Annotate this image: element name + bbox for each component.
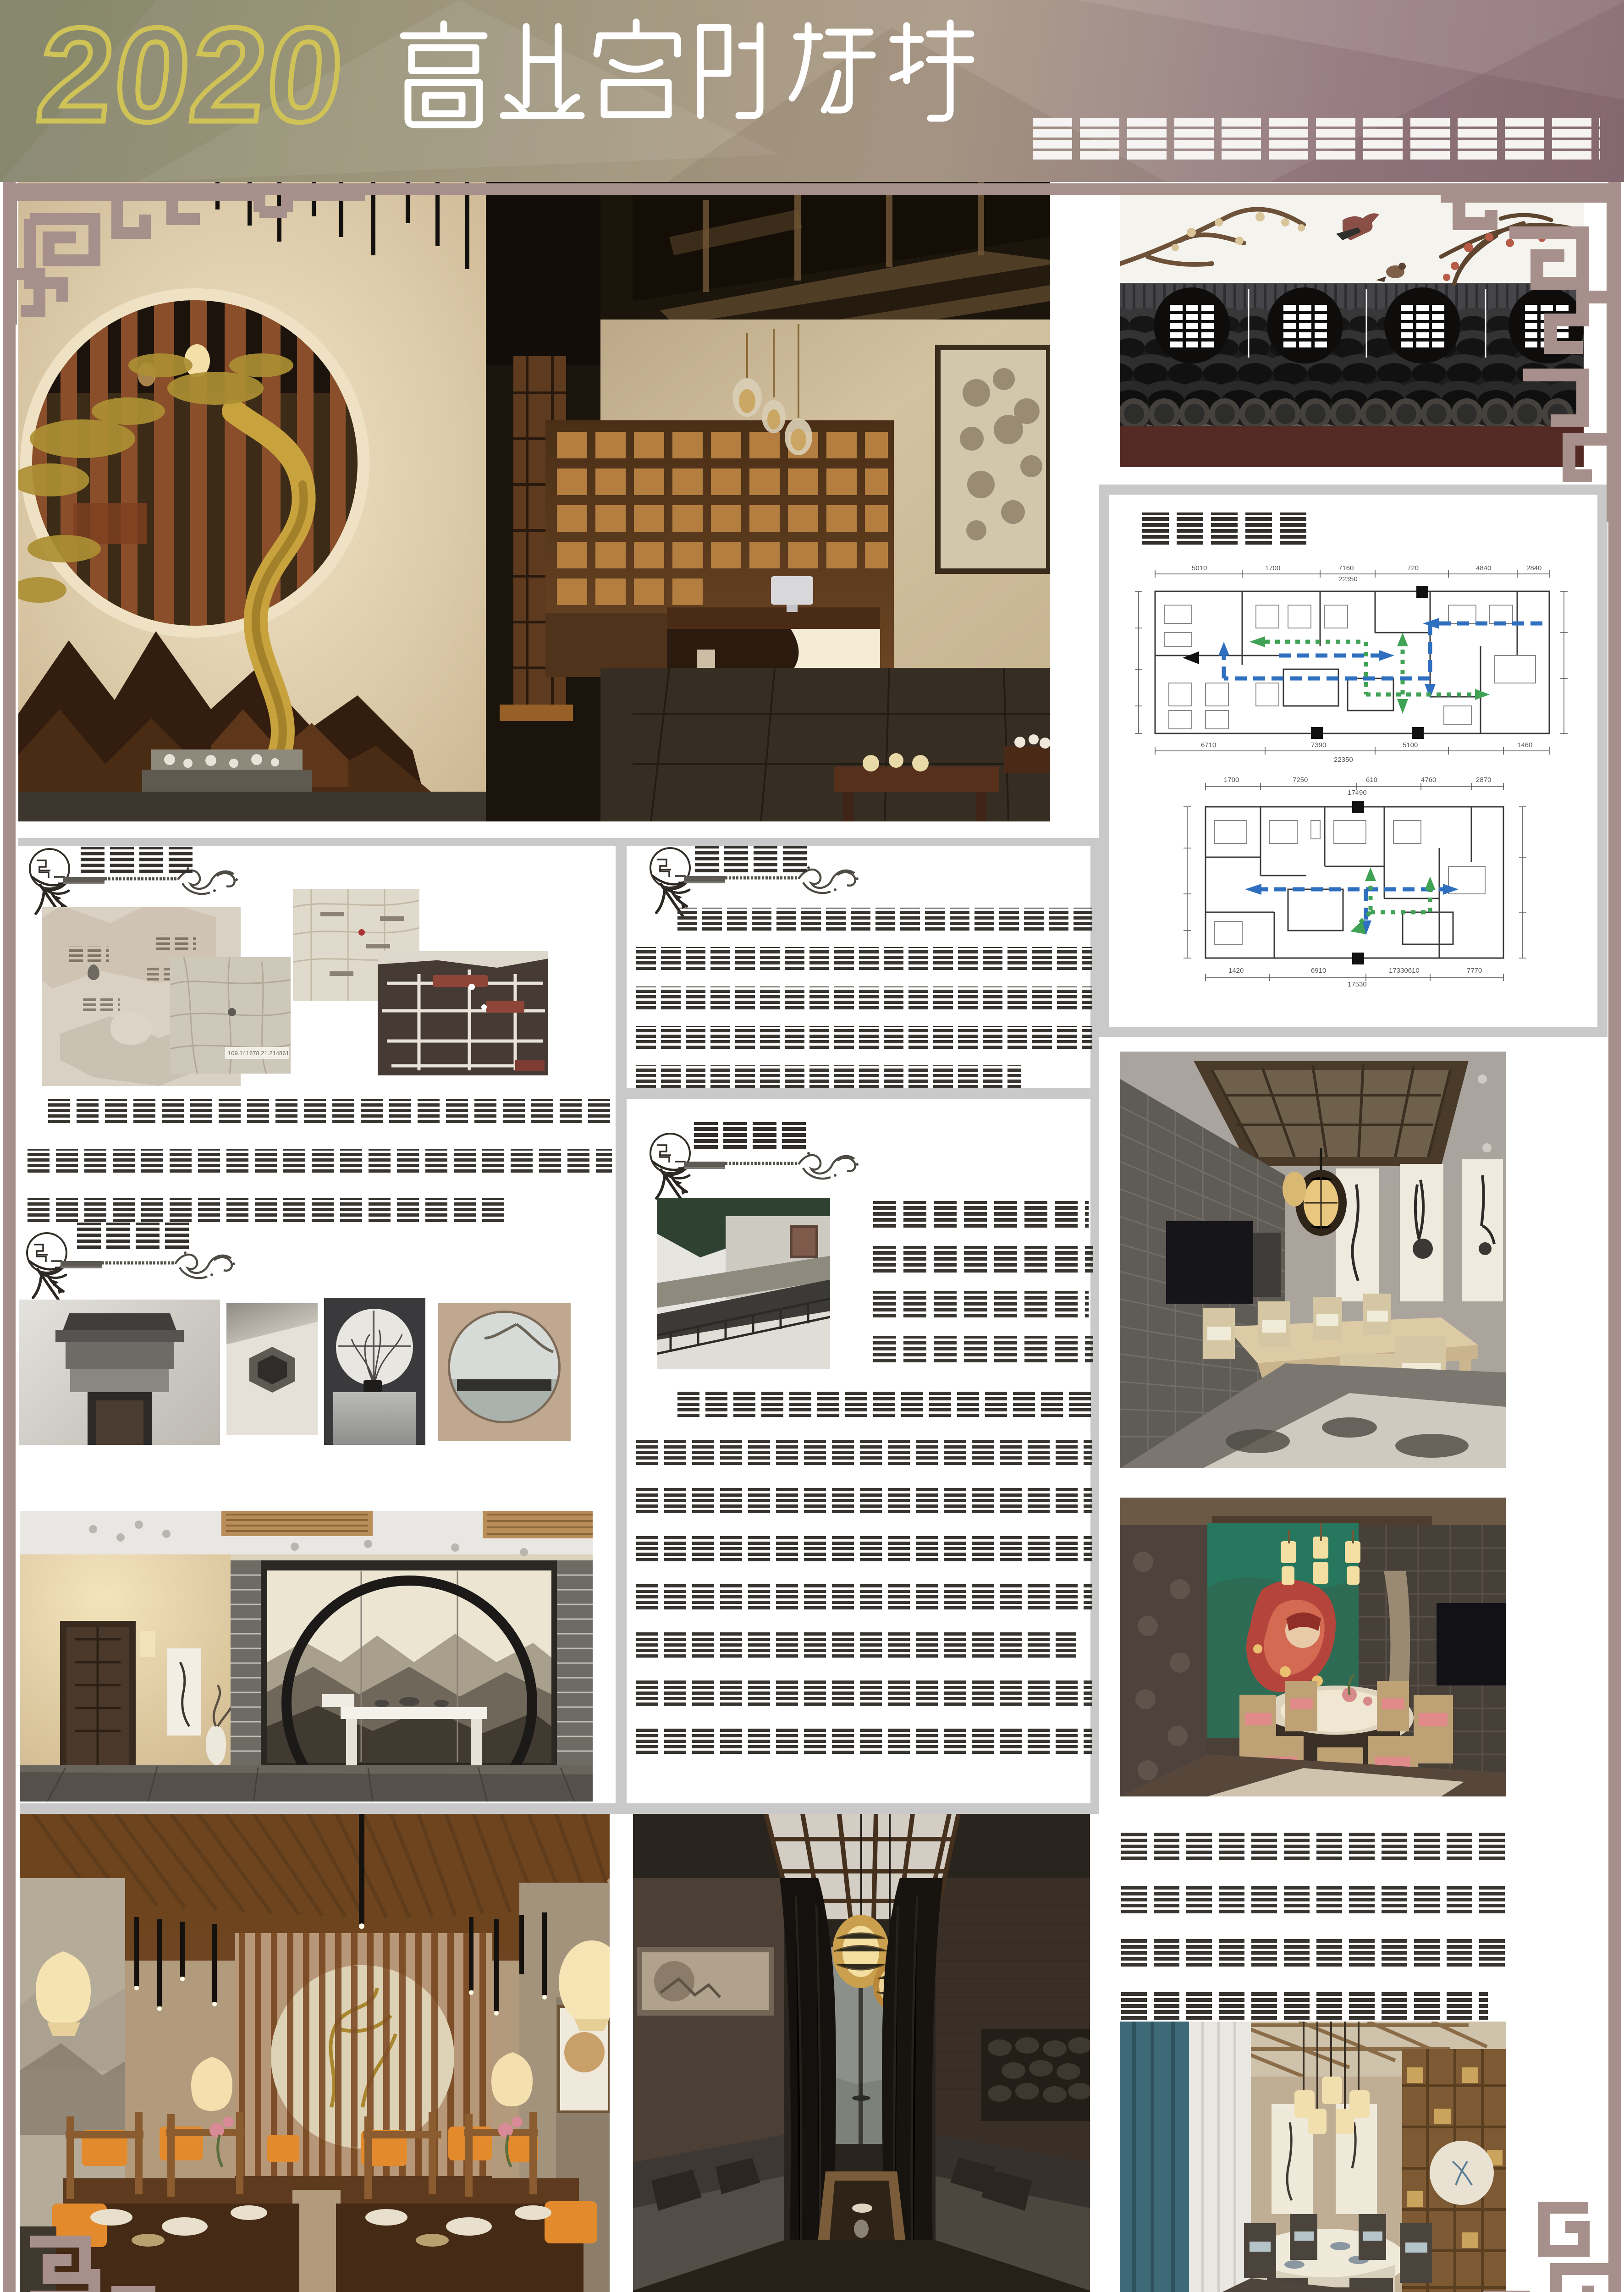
svg-text:6710: 6710 bbox=[1201, 741, 1216, 749]
svg-text:720: 720 bbox=[1407, 564, 1419, 572]
svg-text:17330610: 17330610 bbox=[1389, 967, 1420, 975]
svg-text:5100: 5100 bbox=[1403, 741, 1418, 749]
svg-text:7390: 7390 bbox=[1311, 741, 1326, 749]
svg-text:2870: 2870 bbox=[1476, 776, 1491, 784]
svg-text:1700: 1700 bbox=[1265, 564, 1280, 572]
svg-text:6910: 6910 bbox=[1311, 967, 1326, 975]
svg-text:7250: 7250 bbox=[1293, 776, 1308, 784]
svg-text:17530: 17530 bbox=[1348, 981, 1367, 988]
svg-text:7160: 7160 bbox=[1338, 564, 1354, 572]
svg-text:22350: 22350 bbox=[1338, 575, 1358, 583]
svg-text:4760: 4760 bbox=[1421, 776, 1436, 784]
svg-text:7770: 7770 bbox=[1467, 967, 1482, 975]
svg-text:610: 610 bbox=[1366, 776, 1377, 784]
svg-text:1700: 1700 bbox=[1224, 776, 1239, 784]
svg-text:17490: 17490 bbox=[1348, 789, 1367, 797]
svg-text:22350: 22350 bbox=[1334, 756, 1353, 764]
svg-text:4840: 4840 bbox=[1476, 564, 1491, 572]
svg-text:1420: 1420 bbox=[1228, 967, 1244, 975]
svg-text:2840: 2840 bbox=[1526, 564, 1541, 572]
svg-text:1460: 1460 bbox=[1517, 741, 1532, 749]
svg-text:109.141678,21.214861: 109.141678,21.214861 bbox=[228, 1050, 289, 1057]
svg-text:5010: 5010 bbox=[1192, 564, 1207, 572]
